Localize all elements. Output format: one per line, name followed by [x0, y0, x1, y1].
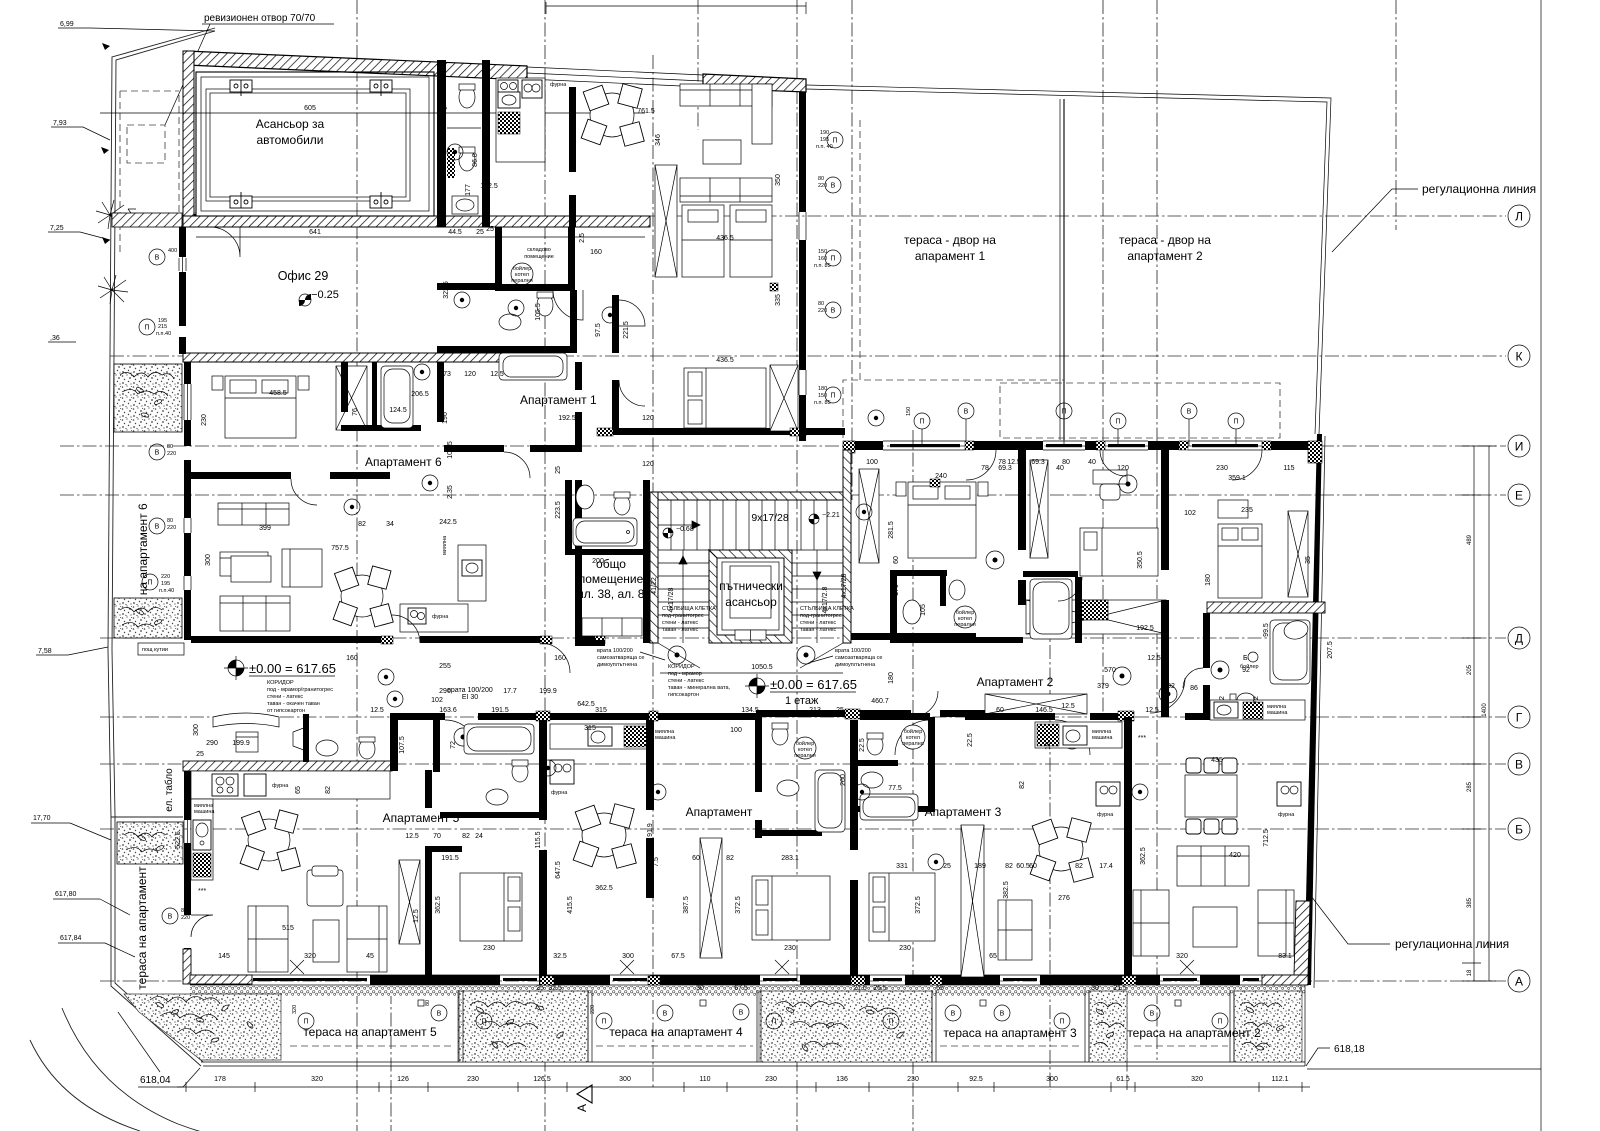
svg-text:32.5: 32.5 — [548, 985, 562, 992]
svg-text:В: В — [155, 524, 160, 531]
svg-text:25: 25 — [943, 863, 951, 870]
svg-text:199.9: 199.9 — [232, 740, 250, 747]
svg-text:П: П — [771, 1019, 776, 1026]
svg-text:86: 86 — [1190, 685, 1198, 692]
svg-text:65: 65 — [295, 786, 302, 794]
svg-text:382.5: 382.5 — [1003, 881, 1010, 899]
svg-text:17.4: 17.4 — [1099, 863, 1113, 870]
svg-text:192.5: 192.5 — [1136, 625, 1154, 632]
svg-text:6,99: 6,99 — [60, 21, 74, 28]
svg-text:Г: Г — [1516, 711, 1523, 725]
svg-text:врата 100/200: врата 100/200 — [597, 648, 633, 654]
svg-text:12: 12 — [437, 156, 444, 164]
svg-text:60.5: 60.5 — [1016, 863, 1030, 870]
svg-text:372.5: 372.5 — [915, 896, 922, 914]
svg-text:285: 285 — [1467, 781, 1473, 792]
svg-text:Асансьор за: Асансьор за — [256, 117, 325, 131]
svg-text:230: 230 — [467, 1076, 479, 1083]
svg-text:В: В — [964, 409, 969, 416]
svg-text:617,80: 617,80 — [55, 891, 77, 898]
svg-text:бойлер: бойлер — [904, 728, 923, 735]
svg-text:П: П — [832, 138, 837, 145]
svg-text:72: 72 — [1253, 696, 1260, 704]
svg-text:61.5: 61.5 — [1116, 1076, 1130, 1083]
svg-text:80: 80 — [425, 1000, 431, 1006]
svg-text:апарамент 1: апарамент 1 — [915, 249, 986, 263]
svg-text:105.5: 105.5 — [447, 441, 454, 459]
svg-text:А: А — [575, 1104, 589, 1112]
svg-text:12.5: 12.5 — [490, 371, 504, 378]
svg-text:В: В — [437, 1011, 442, 1018]
svg-text:331: 331 — [896, 863, 908, 870]
svg-text:фурна: фурна — [1278, 812, 1295, 818]
svg-text:180: 180 — [1205, 574, 1212, 586]
svg-text:фурна: фурна — [551, 790, 568, 796]
svg-text:92: 92 — [1167, 683, 1175, 690]
svg-text:25: 25 — [555, 466, 562, 474]
svg-text:647.5: 647.5 — [555, 861, 562, 879]
svg-text:под - мрамор/гранитогрес: под - мрамор/гранитогрес — [267, 687, 333, 693]
svg-text:107.5: 107.5 — [399, 736, 406, 754]
svg-text:641: 641 — [309, 229, 321, 236]
svg-text:помещение: помещение — [524, 254, 554, 260]
svg-text:В: В — [1187, 409, 1192, 416]
svg-text:врата 100/200: врата 100/200 — [447, 687, 493, 694]
svg-text:под - мрамор: под - мрамор — [668, 671, 702, 677]
svg-text:489: 489 — [1467, 534, 1473, 545]
svg-text:220: 220 — [167, 451, 176, 457]
svg-text:283.1: 283.1 — [781, 855, 799, 862]
svg-text:±0.00 = 617.65: ±0.00 = 617.65 — [249, 661, 336, 676]
svg-text:12.5: 12.5 — [1061, 703, 1075, 710]
svg-text:миялна: миялна — [442, 535, 448, 555]
svg-text:570: 570 — [1104, 667, 1116, 674]
svg-text:220: 220 — [818, 183, 827, 189]
svg-text:107: 107 — [864, 711, 876, 718]
svg-text:69.3: 69.3 — [1031, 459, 1045, 466]
svg-text:41.5: 41.5 — [613, 411, 620, 425]
svg-text:В: В — [663, 1011, 668, 1018]
svg-text:350: 350 — [775, 174, 782, 186]
svg-text:120: 120 — [642, 415, 654, 422]
svg-text:21.5: 21.5 — [1113, 985, 1127, 992]
svg-text:от гипсокартон: от гипсокартон — [267, 708, 305, 714]
svg-text:пощ кутии: пощ кутии — [142, 647, 168, 653]
svg-text:126: 126 — [397, 1076, 409, 1083]
svg-text:В: В — [831, 308, 836, 315]
svg-text:17.7: 17.7 — [503, 688, 517, 695]
svg-text:99.5: 99.5 — [1263, 623, 1270, 637]
svg-text:таван - минерална вата,: таван - минерална вата, — [668, 685, 731, 691]
svg-text:димоуплътнена: димоуплътнена — [597, 662, 638, 668]
svg-text:40: 40 — [1088, 459, 1096, 466]
svg-text:255: 255 — [439, 663, 451, 670]
svg-text:230: 230 — [201, 414, 208, 426]
svg-text:фурна: фурна — [272, 783, 289, 789]
svg-text:300: 300 — [619, 1076, 631, 1083]
svg-text:191.5: 191.5 — [441, 855, 459, 862]
svg-text:230: 230 — [1216, 465, 1228, 472]
svg-text:350.5: 350.5 — [1137, 551, 1144, 569]
svg-text:стени - латекс: стени - латекс — [662, 620, 698, 626]
svg-text:18: 18 — [1467, 969, 1473, 976]
svg-text:191.5: 191.5 — [491, 707, 509, 714]
svg-text:25: 25 — [439, 105, 447, 112]
svg-text:7,58: 7,58 — [38, 648, 52, 655]
svg-text:В: В — [1000, 1011, 1005, 1018]
svg-text:60: 60 — [893, 556, 900, 564]
svg-text:91.9: 91.9 — [647, 823, 654, 837]
svg-text:чл. 38, ал. 8: чл. 38, ал. 8 — [578, 587, 645, 601]
svg-text:машина: машина — [194, 809, 215, 815]
svg-text:359.1: 359.1 — [1228, 475, 1246, 482]
svg-text:В: В — [831, 183, 836, 190]
svg-text:апартамент 2: апартамент 2 — [1127, 249, 1203, 263]
svg-text:362.5: 362.5 — [1140, 847, 1147, 865]
svg-text:206.5: 206.5 — [411, 391, 429, 398]
svg-text:12.5: 12.5 — [370, 707, 384, 714]
svg-text:тераса на апартамент 3: тераса на апартамент 3 — [943, 1026, 1077, 1040]
svg-text:420: 420 — [1229, 852, 1241, 859]
svg-text:П: П — [1115, 419, 1120, 426]
svg-text:150: 150 — [818, 393, 827, 399]
svg-text:126.5: 126.5 — [533, 1076, 551, 1083]
svg-text:178: 178 — [214, 1076, 226, 1083]
svg-text:230: 230 — [483, 945, 495, 952]
svg-text:80: 80 — [818, 176, 824, 182]
svg-text:18: 18 — [1045, 742, 1052, 750]
svg-text:320: 320 — [1176, 953, 1188, 960]
svg-text:77.5: 77.5 — [888, 785, 902, 792]
svg-text:1050.5: 1050.5 — [751, 664, 773, 671]
svg-text:СТЪЛБИЩА КЛЕТКА: СТЪЛБИЩА КЛЕТКА — [800, 606, 854, 612]
svg-text:30: 30 — [1091, 985, 1099, 992]
svg-text:112.1: 112.1 — [1272, 1076, 1289, 1083]
svg-text:122.5: 122.5 — [480, 183, 498, 190]
svg-text:***: *** — [1138, 735, 1146, 742]
svg-text:ревизионен отвор 70/70: ревизионен отвор 70/70 — [204, 13, 316, 24]
svg-text:235: 235 — [1241, 507, 1253, 514]
svg-text:4х17/28: 4х17/28 — [841, 573, 848, 598]
svg-text:Апартамент: Апартамент — [686, 805, 753, 819]
svg-text:221.5: 221.5 — [623, 321, 630, 339]
svg-text:80: 80 — [1062, 459, 1070, 466]
svg-text:82: 82 — [1019, 781, 1026, 789]
svg-text:69.3: 69.3 — [998, 465, 1012, 472]
svg-text:220: 220 — [181, 915, 190, 921]
svg-text:177: 177 — [465, 184, 472, 196]
svg-text:самозатваряща се: самозатваряща се — [597, 655, 644, 661]
svg-text:80: 80 — [167, 518, 173, 524]
svg-text:таван - латекс: таван - латекс — [662, 627, 698, 633]
svg-text:435: 435 — [1211, 757, 1223, 764]
svg-text:180: 180 — [888, 672, 895, 684]
svg-text:82: 82 — [462, 833, 470, 840]
svg-text:134.5: 134.5 — [741, 707, 759, 714]
svg-text:220: 220 — [818, 308, 827, 314]
svg-text:В: В — [155, 255, 160, 262]
svg-text:П: П — [601, 1019, 606, 1026]
svg-text:бойлер: бойлер — [796, 740, 815, 747]
svg-text:195: 195 — [820, 137, 829, 143]
svg-text:67.5: 67.5 — [734, 985, 748, 992]
svg-text:димоуплътнена: димоуплътнена — [835, 662, 876, 668]
svg-text:260: 260 — [840, 774, 847, 786]
svg-text:Апартамент 3: Апартамент 3 — [925, 805, 1002, 819]
svg-text:385: 385 — [1467, 897, 1473, 908]
svg-text:515: 515 — [282, 925, 294, 932]
svg-text:1 етаж: 1 етаж — [785, 695, 819, 707]
svg-text:220: 220 — [167, 525, 176, 531]
svg-text:таван - латекс: таван - латекс — [800, 627, 836, 633]
svg-text:тераса на апартамент 5: тераса на апартамент 5 — [135, 856, 149, 990]
svg-text:315: 315 — [584, 725, 596, 732]
svg-text:КОРИДОР: КОРИДОР — [668, 664, 695, 670]
svg-text:12.5: 12.5 — [405, 833, 419, 840]
svg-text:34: 34 — [386, 521, 394, 528]
svg-text:60: 60 — [996, 707, 1004, 714]
svg-text:230: 230 — [765, 1076, 777, 1083]
svg-text:320: 320 — [1191, 1076, 1203, 1083]
svg-text:335: 335 — [775, 294, 782, 306]
svg-text:26.5: 26.5 — [873, 985, 887, 992]
svg-text:Офис 29: Офис 29 — [278, 269, 329, 283]
svg-text:П: П — [481, 1019, 486, 1026]
svg-text:372.5: 372.5 — [851, 896, 858, 914]
svg-text:120: 120 — [464, 371, 476, 378]
svg-text:Б: Б — [1243, 655, 1248, 662]
svg-text:180: 180 — [818, 386, 827, 392]
svg-text:25: 25 — [836, 707, 844, 714]
svg-text:642.5: 642.5 — [577, 701, 595, 708]
svg-text:80: 80 — [818, 301, 824, 307]
svg-text:п.п. 85: п.п. 85 — [814, 263, 831, 269]
svg-text:60: 60 — [692, 855, 700, 862]
svg-text:160: 160 — [818, 256, 827, 262]
svg-text:617,84: 617,84 — [60, 935, 82, 942]
svg-text:п.п. 85: п.п. 85 — [814, 400, 831, 406]
svg-text:В: В — [739, 1010, 744, 1017]
svg-text:320: 320 — [311, 1076, 323, 1083]
svg-text:пералня: пералня — [954, 622, 975, 628]
svg-text:170: 170 — [893, 584, 900, 596]
svg-text:102: 102 — [1184, 510, 1196, 517]
svg-text:12.5: 12.5 — [1007, 459, 1021, 466]
svg-text:П: П — [830, 393, 835, 400]
svg-text:СТЪЛБИЩА КЛЕТКА: СТЪЛБИЩА КЛЕТКА — [662, 606, 716, 612]
svg-text:п.п. 40: п.п. 40 — [816, 144, 833, 150]
svg-text:асансьор: асансьор — [725, 595, 777, 609]
svg-text:120: 120 — [1117, 465, 1129, 472]
svg-text:399: 399 — [259, 525, 271, 532]
svg-text:п.п.40: п.п.40 — [156, 331, 171, 337]
svg-text:82: 82 — [1005, 863, 1013, 870]
svg-text:67.5: 67.5 — [671, 953, 685, 960]
svg-text:В: В — [951, 1011, 956, 1018]
svg-text:П: П — [1217, 1019, 1222, 1026]
svg-text:44.5: 44.5 — [448, 229, 462, 236]
svg-text:192.5: 192.5 — [558, 415, 576, 422]
svg-text:±0.00 = 617.65: ±0.00 = 617.65 — [770, 677, 857, 692]
svg-text:пералня: пералня — [511, 278, 532, 284]
svg-text:32.5: 32.5 — [553, 953, 567, 960]
svg-text:387.5: 387.5 — [683, 896, 690, 914]
svg-text:97.5: 97.5 — [595, 323, 602, 337]
svg-text:102: 102 — [431, 697, 443, 704]
svg-text:83.1: 83.1 — [1278, 953, 1292, 960]
svg-text:41/22: 41/22 — [651, 577, 658, 595]
svg-text:150: 150 — [818, 249, 827, 255]
svg-text:80: 80 — [167, 444, 173, 450]
svg-text:618,18: 618,18 — [1334, 1044, 1365, 1055]
svg-text:220: 220 — [161, 574, 170, 580]
svg-text:−0.68: −0.68 — [676, 526, 694, 533]
svg-text:пътнически: пътнически — [719, 579, 783, 593]
svg-text:ЕІ 30: ЕІ 30 — [462, 694, 478, 701]
svg-text:1400: 1400 — [1482, 703, 1488, 717]
svg-text:таван - окачен таван: таван - окачен таван — [267, 701, 320, 707]
svg-text:***: *** — [198, 888, 206, 895]
svg-text:тераса на апартамент 2: тераса на апартамент 2 — [1127, 1026, 1261, 1040]
svg-text:П: П — [144, 325, 149, 332]
svg-text:Л: Л — [1515, 210, 1523, 224]
svg-text:136: 136 — [836, 1076, 848, 1083]
svg-text:362.5: 362.5 — [595, 885, 613, 892]
svg-text:12.5: 12.5 — [413, 909, 420, 923]
svg-text:199.9: 199.9 — [539, 688, 557, 695]
svg-text:12.5: 12.5 — [1147, 655, 1161, 662]
svg-text:общо: общо — [596, 557, 626, 571]
svg-text:Д: Д — [1515, 632, 1523, 646]
svg-text:45: 45 — [366, 953, 374, 960]
svg-text:П: П — [1059, 1019, 1064, 1026]
svg-text:9x17/28: 9x17/28 — [751, 512, 789, 524]
svg-text:276: 276 — [1058, 895, 1070, 902]
svg-text:761.5: 761.5 — [637, 108, 655, 115]
svg-text:врата 100/200: врата 100/200 — [835, 648, 871, 654]
svg-text:П: П — [1233, 419, 1238, 426]
svg-text:машина: машина — [655, 735, 676, 741]
svg-text:А: А — [1515, 975, 1523, 989]
svg-text:300: 300 — [193, 724, 200, 736]
svg-text:В: В — [1515, 758, 1523, 772]
svg-text:230: 230 — [899, 945, 911, 952]
svg-text:25: 25 — [196, 751, 204, 758]
svg-text:тераса на апартамент 4: тераса на апартамент 4 — [609, 1025, 743, 1039]
svg-text:73: 73 — [443, 371, 451, 378]
svg-text:25: 25 — [536, 985, 544, 992]
svg-text:160: 160 — [554, 655, 566, 662]
svg-text:стени - латекс: стени - латекс — [267, 694, 303, 700]
svg-text:757.5: 757.5 — [331, 545, 349, 552]
svg-text:П: П — [888, 1019, 893, 1026]
svg-text:82: 82 — [358, 521, 366, 528]
svg-text:Е: Е — [1515, 489, 1523, 503]
svg-text:65: 65 — [936, 985, 944, 992]
svg-text:22.5: 22.5 — [859, 738, 866, 752]
svg-text:В: В — [1150, 1011, 1155, 1018]
svg-text:82: 82 — [325, 786, 332, 794]
svg-text:300: 300 — [622, 953, 634, 960]
svg-text:207.5: 207.5 — [1327, 641, 1334, 659]
svg-text:П: П — [303, 1019, 308, 1026]
svg-text:12.5: 12.5 — [1145, 707, 1159, 714]
svg-text:436.5: 436.5 — [716, 235, 734, 242]
svg-text:22.5: 22.5 — [967, 733, 974, 747]
svg-text:120: 120 — [642, 461, 654, 468]
svg-text:712.5: 712.5 — [1263, 829, 1270, 847]
svg-text:фурна: фурна — [432, 614, 449, 620]
svg-text:гипсокартон: гипсокартон — [668, 692, 699, 698]
svg-text:7,25: 7,25 — [50, 225, 64, 232]
svg-text:70: 70 — [433, 833, 441, 840]
svg-text:пералня: пералня — [902, 741, 923, 747]
svg-text:17,70: 17,70 — [33, 815, 51, 822]
svg-text:40: 40 — [1056, 465, 1064, 472]
svg-text:фурна: фурна — [550, 82, 567, 88]
svg-text:300: 300 — [1046, 1076, 1058, 1083]
svg-text:помещение: помещение — [579, 572, 644, 586]
svg-text:30: 30 — [696, 985, 704, 992]
svg-text:ел. табло: ел. табло — [163, 768, 175, 812]
svg-text:110: 110 — [699, 1076, 710, 1083]
svg-text:КОРИДОР: КОРИДОР — [267, 680, 294, 686]
svg-text:458.5: 458.5 — [269, 390, 287, 397]
svg-text:пералня: пералня — [794, 753, 815, 759]
svg-text:25: 25 — [486, 226, 494, 233]
svg-text:35: 35 — [1305, 556, 1312, 564]
svg-text:82: 82 — [726, 855, 734, 862]
svg-text:под-гранитогрес: под-гранитогрес — [662, 613, 704, 619]
svg-text:И: И — [1515, 440, 1524, 454]
svg-text:65: 65 — [989, 953, 997, 960]
svg-text:76: 76 — [352, 408, 359, 416]
svg-text:25: 25 — [476, 229, 484, 236]
svg-text:230: 230 — [907, 1076, 919, 1083]
svg-text:213: 213 — [809, 707, 821, 714]
svg-text:7,93: 7,93 — [53, 120, 67, 127]
svg-text:60: 60 — [1029, 863, 1037, 870]
svg-text:Апартамент 1: Апартамент 1 — [520, 393, 597, 407]
svg-text:315: 315 — [595, 707, 607, 714]
svg-text:146.5: 146.5 — [1035, 707, 1053, 714]
svg-text:82: 82 — [1075, 863, 1083, 870]
svg-text:105.5: 105.5 — [535, 303, 542, 321]
svg-text:290: 290 — [206, 740, 218, 747]
svg-text:П: П — [830, 256, 835, 263]
svg-text:205: 205 — [1467, 664, 1473, 675]
svg-text:−2.21: −2.21 — [822, 512, 840, 519]
svg-text:105: 105 — [920, 604, 927, 616]
svg-text:115: 115 — [1283, 465, 1294, 472]
svg-text:бойлер: бойлер — [956, 609, 975, 616]
svg-text:160: 160 — [590, 249, 602, 256]
svg-text:436.5: 436.5 — [716, 357, 734, 364]
svg-text:тераса - двор на: тераса - двор на — [1119, 233, 1211, 247]
svg-text:стени - латекс: стени - латекс — [668, 678, 704, 684]
svg-text:Апартамент 6: Апартамент 6 — [365, 455, 442, 469]
svg-text:320: 320 — [304, 953, 316, 960]
svg-text:379: 379 — [1097, 683, 1109, 690]
svg-text:бойлер: бойлер — [513, 265, 532, 272]
svg-text:под-гранитогрес: под-гранитогрес — [800, 613, 842, 619]
svg-text:тераса на апартамент 5: тераса на апартамент 5 — [303, 1025, 437, 1039]
svg-text:362.5: 362.5 — [435, 896, 442, 914]
svg-text:281.5: 281.5 — [888, 521, 895, 539]
svg-text:машина: машина — [1092, 735, 1113, 741]
svg-text:,36: ,36 — [50, 335, 60, 342]
svg-text:Апартамент 5: Апартамент 5 — [383, 811, 460, 825]
